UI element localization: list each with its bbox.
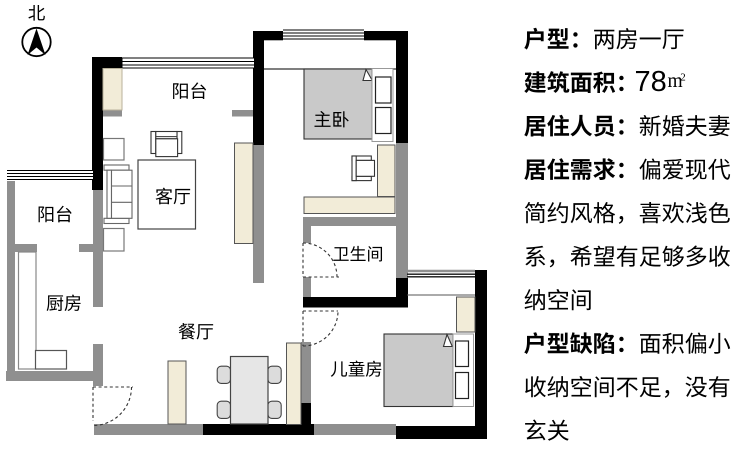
svg-text:2: 2 (680, 72, 686, 84)
svg-text:78: 78 (635, 66, 667, 98)
